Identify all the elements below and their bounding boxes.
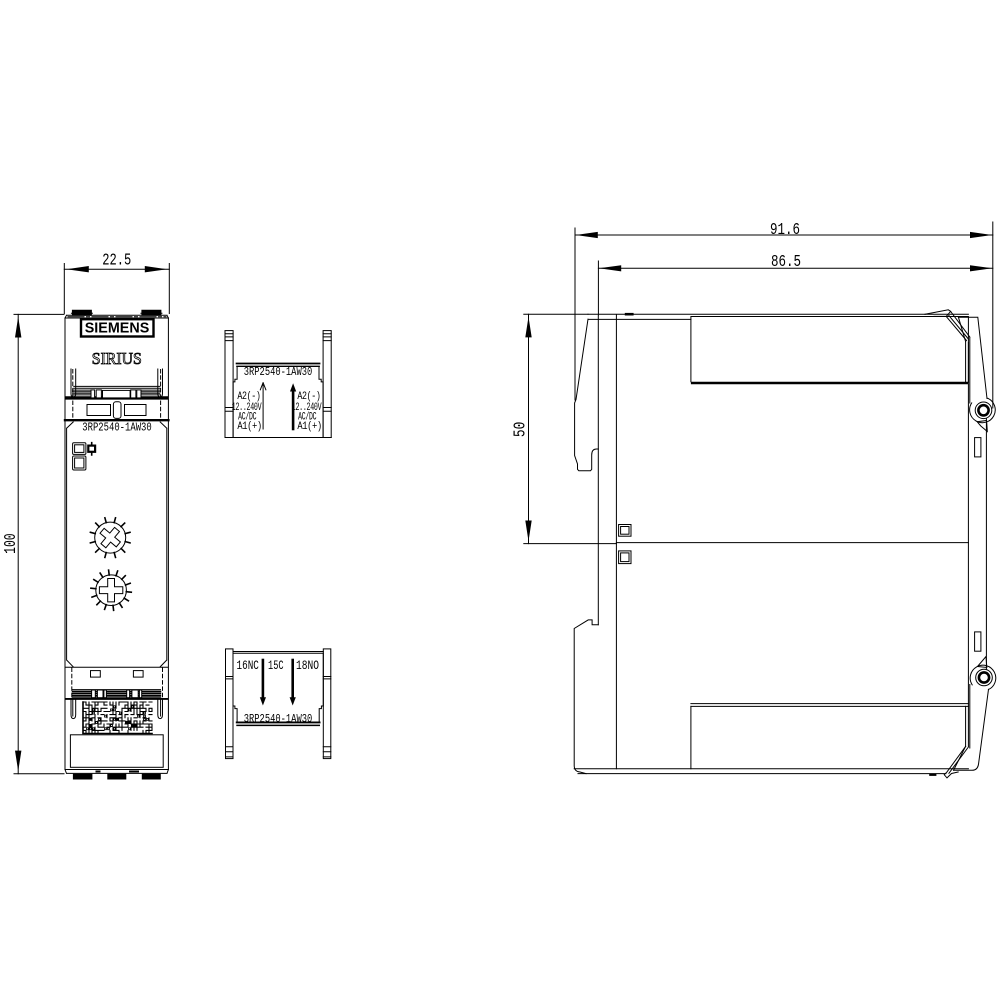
svg-text:86.5: 86.5 — [771, 252, 801, 271]
svg-text:A1(+): A1(+) — [297, 421, 321, 433]
svg-text:22.5: 22.5 — [102, 250, 131, 269]
svg-text:A1(+): A1(+) — [237, 421, 261, 433]
svg-text:3RP2540-1AW30: 3RP2540-1AW30 — [244, 366, 313, 379]
svg-text:16NC: 16NC — [237, 658, 260, 673]
svg-text:15C: 15C — [268, 658, 284, 673]
svg-text:91.6: 91.6 — [770, 220, 800, 239]
svg-text:A2(-): A2(-) — [297, 391, 320, 403]
svg-text:100: 100 — [1, 533, 20, 554]
svg-text:3RP2540-1AW30: 3RP2540-1AW30 — [244, 713, 313, 726]
svg-text:50: 50 — [511, 422, 530, 438]
svg-text:18NO: 18NO — [296, 658, 319, 673]
svg-text:SIEMENS: SIEMENS — [85, 321, 150, 337]
svg-text:3RP2540-1AW30: 3RP2540-1AW30 — [82, 422, 152, 435]
svg-text:SIRIUS: SIRIUS — [92, 349, 142, 368]
svg-text:A2(-): A2(-) — [237, 391, 260, 403]
